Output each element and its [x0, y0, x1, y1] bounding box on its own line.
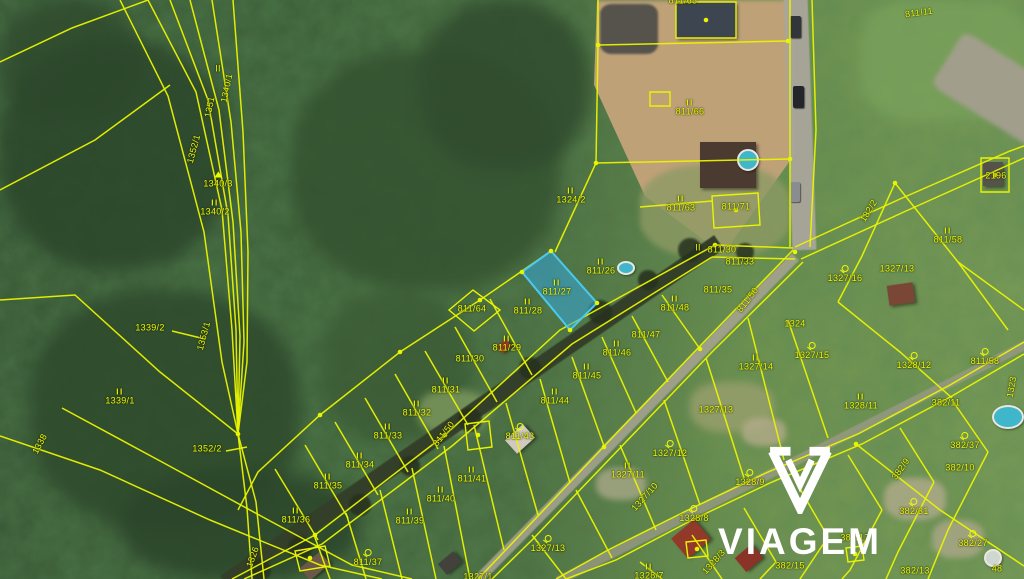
parcel-label: 1340/3	[203, 172, 232, 189]
parcel-label: 811/30	[708, 246, 737, 255]
parcel-label: 2196	[985, 172, 1006, 181]
parcel-label: 1340/1	[220, 73, 235, 104]
parcel-label: 382/15	[775, 562, 804, 571]
parcel-boundary-line	[566, 354, 1024, 579]
boundary-vertex	[594, 161, 599, 166]
building-outline	[712, 193, 760, 228]
parcel-label: 1351	[203, 96, 216, 119]
parcel-label: II811/32	[403, 401, 432, 418]
parcel-label: 48	[992, 565, 1003, 574]
parcel-boundary-line	[640, 562, 662, 579]
parcel-label: 811/37	[354, 549, 383, 567]
house-roof	[671, 519, 711, 558]
parcel-label: 811/47	[632, 331, 661, 340]
parcel-boundary-line	[478, 250, 793, 579]
parcel-boundary-line	[474, 425, 504, 550]
house-roof	[735, 544, 763, 572]
parcel-boundary-line	[788, 320, 828, 438]
terrain-patch	[0, 0, 140, 120]
road	[475, 253, 799, 579]
parcel-label: 1328/9	[735, 469, 764, 487]
parcel-label: 811/65	[669, 0, 698, 6]
parcel-label: 382/27	[958, 530, 987, 548]
parcel-label: II1328/7	[634, 564, 663, 579]
boundary-vertex	[549, 249, 554, 254]
parcel-label: II1328/11	[844, 394, 878, 411]
viagem-logo-icon	[762, 444, 838, 514]
building-outline	[686, 540, 708, 558]
parcel-label: 811/43	[506, 423, 535, 441]
parcel-boundary-line	[928, 452, 988, 579]
parcel-label: II811/63	[667, 196, 696, 213]
viagem-watermark: VIAGEM	[700, 444, 900, 563]
parcel-label: 1353/1	[196, 321, 212, 352]
parcel-boundary-line	[692, 535, 722, 579]
boundary-vertex	[853, 552, 858, 557]
parcel-boundaries	[0, 0, 1024, 579]
parcel-boundary-line	[596, 159, 790, 163]
terrain-patch	[690, 382, 774, 432]
parcel-label: II811/36	[282, 508, 311, 525]
swimming-pool	[992, 405, 1024, 429]
parcel-boundary-line	[492, 262, 803, 579]
parcel-label: 1327/15	[795, 342, 830, 360]
parcel-label: 811/11	[905, 7, 934, 20]
parcel-label: 382/31	[899, 498, 928, 516]
boundary-vertex	[786, 39, 791, 44]
tree	[400, 456, 420, 476]
parcel-boundary-line	[598, 41, 788, 45]
parcel-label: 382/17	[840, 534, 869, 543]
building-outline	[449, 290, 500, 331]
parcel-label: 1326	[245, 545, 261, 568]
parcel-boundary-line	[233, 0, 248, 434]
parcel-boundary-line	[886, 482, 934, 579]
parcel-label: II811/44	[541, 389, 570, 406]
parcel-label: II811/31	[432, 378, 461, 395]
parcel-boundary-line	[810, 0, 816, 247]
parcel-boundary-line	[212, 0, 244, 434]
parcel-label: 811/33	[726, 258, 755, 267]
parcel-boundary-line	[238, 251, 551, 510]
boundary-vertex	[596, 43, 601, 48]
parcel-label: 811/64	[458, 305, 487, 314]
parcel-label: II811/35	[314, 474, 343, 491]
parcel-label: II	[215, 65, 221, 74]
building-outline	[981, 158, 1009, 192]
parcel-label: 1324	[784, 320, 805, 329]
parcel-boundary-line	[380, 490, 402, 579]
tree	[736, 243, 754, 261]
building-outline	[676, 2, 736, 38]
terrain-patch	[884, 478, 946, 520]
parcel-label: II811/48	[661, 296, 690, 313]
parcel-label: II1327/14	[739, 355, 774, 372]
house-roof	[700, 142, 756, 188]
building-outline	[650, 92, 670, 106]
tree	[588, 300, 612, 324]
parcel-label: II811/29	[493, 336, 522, 353]
parcel-boundary-line	[715, 245, 793, 248]
parcel-label: II811/41	[458, 467, 487, 484]
parcel-boundary-line	[412, 468, 436, 579]
parcel-label: 382/10	[945, 464, 974, 473]
parcel-label: II811/39	[396, 509, 425, 526]
parcel-boundary-line	[346, 513, 366, 579]
parcel-boundary-line	[838, 183, 895, 302]
house-roof	[676, 2, 736, 38]
parcel-boundary-line	[455, 327, 497, 402]
parcel-boundary-line	[275, 469, 318, 540]
parcel-boundary-line	[664, 400, 700, 505]
boundary-vertex	[788, 157, 793, 162]
terrain-patch	[640, 165, 790, 257]
parcel-boundary-line	[238, 434, 252, 579]
terrain-patch	[860, 0, 1024, 120]
tree	[349, 494, 371, 516]
boundary-vertex	[854, 442, 859, 447]
terrain-patch	[420, 0, 590, 170]
parcel-boundary-line	[238, 434, 264, 579]
boundary-vertex	[698, 347, 703, 352]
boundary-vertex	[734, 208, 739, 213]
terrain-patch	[932, 520, 984, 558]
parcel-label: 1328/8	[679, 505, 708, 523]
road	[784, 0, 817, 250]
terrain-patch	[418, 390, 488, 434]
parcel-boundary-line	[335, 422, 378, 495]
car	[790, 16, 801, 38]
boundary-vertex	[236, 432, 241, 437]
boundary-vertex	[478, 298, 483, 303]
parcel-label: II811/26	[587, 259, 616, 276]
parcel-label: 182/2	[859, 198, 879, 223]
boundary-vertex	[313, 533, 318, 538]
building-outline	[295, 546, 330, 571]
parcel-boundary-line	[801, 158, 1024, 259]
parcel-boundary-line	[744, 508, 776, 562]
boundary-vertex	[993, 173, 998, 178]
parcel-boundary-line	[0, 295, 238, 434]
parcel-boundary-line	[506, 403, 538, 515]
parcel-label: II811/45	[573, 364, 602, 381]
swimming-pool	[984, 549, 1002, 567]
boundary-vertex	[398, 350, 403, 355]
parcel-label: II811/27	[543, 280, 572, 297]
parcel-boundary-line	[555, 0, 598, 252]
parcel-label: 811/30	[456, 355, 485, 364]
tree	[288, 536, 312, 560]
viagem-logo-text: VIAGEM	[700, 521, 900, 563]
parcel-label: II1324/2	[556, 188, 585, 205]
terrain-texture	[0, 0, 1024, 579]
house-roof	[505, 424, 535, 453]
parcel-label: II1339/1	[105, 389, 134, 406]
parcel-boundary-line	[425, 351, 468, 425]
parcel-boundary-line	[314, 535, 330, 579]
parcel-label: 1327/12	[653, 440, 688, 458]
swimming-pool	[617, 261, 635, 275]
parcel-boundary-line	[900, 428, 934, 482]
parcel-label: 811/35	[704, 286, 733, 295]
parcel-label: 382/37	[950, 432, 979, 450]
parcel-label: 1327/1	[463, 573, 492, 579]
parcel-label: 811/50	[432, 420, 457, 448]
parcel-label: II811/58	[934, 228, 963, 245]
tree	[458, 408, 482, 432]
tree	[678, 238, 702, 262]
tree	[519, 357, 541, 379]
parcel-boundary-line	[244, 257, 712, 579]
parcel-boundary-line	[796, 482, 828, 537]
cadastral-map[interactable]: 1340/113511352/11340/3II1340/2II1339/213…	[0, 0, 1024, 579]
boundary-vertex	[793, 250, 798, 255]
parcel-label: 1338	[31, 433, 49, 456]
parcel-label: 1352/2	[192, 445, 221, 454]
parcel-boundary-line	[365, 398, 408, 472]
parcel-boundary-line	[305, 445, 348, 518]
terrain-patch	[290, 50, 560, 290]
parcel-boundary-line	[395, 374, 438, 449]
parcel-label: II811/46	[603, 341, 632, 358]
parcel-boundary-line	[848, 455, 882, 510]
parcel-boundary-line	[0, 436, 382, 579]
terrain-patch	[555, 0, 855, 265]
house-roof	[497, 339, 512, 354]
parcel-boundary-line	[172, 331, 205, 339]
parcel-boundary-line	[838, 302, 952, 398]
parcel-label: 811/58	[971, 348, 1000, 366]
terrain-patch	[742, 418, 786, 446]
terrain-patch	[600, 4, 658, 54]
parcel-boundary-line	[895, 183, 1008, 330]
parcel-label: 382/11	[932, 399, 961, 408]
boundary-vertex	[476, 433, 481, 438]
building-outline	[465, 421, 492, 450]
parcel-boundary-line	[748, 318, 784, 460]
parcel-boundary-line	[540, 379, 570, 483]
parcel-boundary-line	[856, 444, 1024, 566]
parcel-boundary-line	[662, 295, 700, 349]
parcel-boundary-line	[148, 0, 238, 434]
parcel-label: 1327/13	[531, 535, 566, 553]
parcel-boundary-line	[602, 337, 636, 413]
parcel-boundary-line	[522, 272, 570, 330]
parcel-boundary-line	[120, 0, 238, 434]
parcel-boundary-line	[190, 0, 240, 434]
parcel-boundary-line	[444, 446, 470, 579]
tree	[249, 559, 271, 579]
parcel-label: 1339/2	[135, 324, 164, 333]
parcel-label: 1327/16	[828, 265, 863, 283]
parcel-boundary-line	[800, 537, 828, 579]
house-roof	[438, 551, 462, 575]
highlighted-parcel	[522, 251, 597, 330]
parcel-boundary-line	[490, 299, 532, 375]
terrain-patch	[596, 468, 646, 500]
parcel-boundary-line	[842, 510, 882, 579]
terrain-patch	[120, 470, 360, 579]
boundary-vertex	[602, 445, 607, 450]
boundary-vertex	[704, 18, 709, 23]
parcel-labels-layer: 1340/113511352/11340/3II1340/2II1339/213…	[0, 0, 1024, 579]
swimming-pool	[737, 149, 759, 171]
parcel-boundary-line	[706, 358, 744, 478]
parcel-boundary-line	[640, 201, 712, 207]
parcel-label: II1340/2	[200, 200, 229, 217]
parcel-boundary-line	[712, 257, 795, 259]
parcel-boundary-line	[170, 0, 238, 434]
parcel-boundary-line	[0, 85, 170, 190]
parcel-boundary-line	[532, 535, 566, 579]
parcel-boundary-line	[232, 245, 715, 579]
parcel-boundary-line	[620, 445, 656, 530]
parcel-label: II811/34	[346, 453, 375, 470]
boundary-vertex	[318, 413, 323, 418]
parcel-boundary-line	[760, 562, 776, 579]
parcel-label: 1327/13	[880, 265, 915, 274]
parcel-label: II1327/11	[611, 463, 645, 480]
terrain-patch	[0, 40, 230, 270]
parcel-boundary-line	[0, 0, 148, 62]
terrain-patch	[931, 31, 1024, 159]
boundary-vertex	[893, 181, 898, 186]
parcel-boundary-line	[576, 490, 612, 558]
parcel-label: 1328/3	[701, 548, 727, 576]
house-roof	[983, 162, 1003, 186]
parcel-boundary-line	[795, 146, 1024, 247]
terrain-patch	[320, 290, 470, 440]
house-roof	[300, 552, 330, 579]
parcel-label: 1352/1	[186, 134, 202, 165]
boundary-vertex	[520, 270, 525, 275]
parcel-boundary-line	[572, 357, 604, 446]
tree	[638, 270, 658, 290]
parcel-boundary-line	[62, 408, 412, 579]
parcel-label: 382/9	[890, 457, 911, 482]
parcel-label: 1327/10	[630, 481, 660, 513]
boundary-vertex	[713, 243, 718, 248]
parcel-boundary-line	[226, 447, 247, 451]
road	[220, 235, 724, 579]
parcel-label: II811/28	[514, 299, 543, 316]
parcel-boundary-line	[958, 262, 1024, 310]
parcel-label: 1328/12	[897, 352, 932, 370]
parcel-label: 811/71	[722, 203, 751, 212]
boundary-vertex	[595, 301, 600, 306]
terrain-patch	[30, 290, 300, 530]
boundary-vertex	[568, 328, 573, 333]
parcel-label: 1327/13	[699, 406, 734, 415]
parcel-label: 1323	[1006, 376, 1019, 398]
parcel-boundary-line	[952, 400, 988, 452]
parcel-boundary-line	[556, 342, 1024, 579]
parcel-boundary-line	[632, 316, 668, 382]
car	[790, 182, 800, 202]
parcel-label: II811/66	[676, 100, 705, 117]
house-roof	[887, 282, 916, 305]
parcel-label: II	[695, 244, 701, 253]
parcel-label: 811/50	[736, 286, 761, 314]
parcel-label: II811/40	[427, 487, 456, 504]
boundary-vertex	[443, 433, 448, 438]
parcel-label: 382/13	[900, 567, 929, 576]
road	[556, 340, 1024, 579]
parcel-label: II811/33	[374, 424, 403, 441]
boundary-vertex	[308, 556, 313, 561]
car	[793, 86, 804, 108]
boundary-vertex	[695, 547, 700, 552]
building-outline	[846, 546, 864, 562]
